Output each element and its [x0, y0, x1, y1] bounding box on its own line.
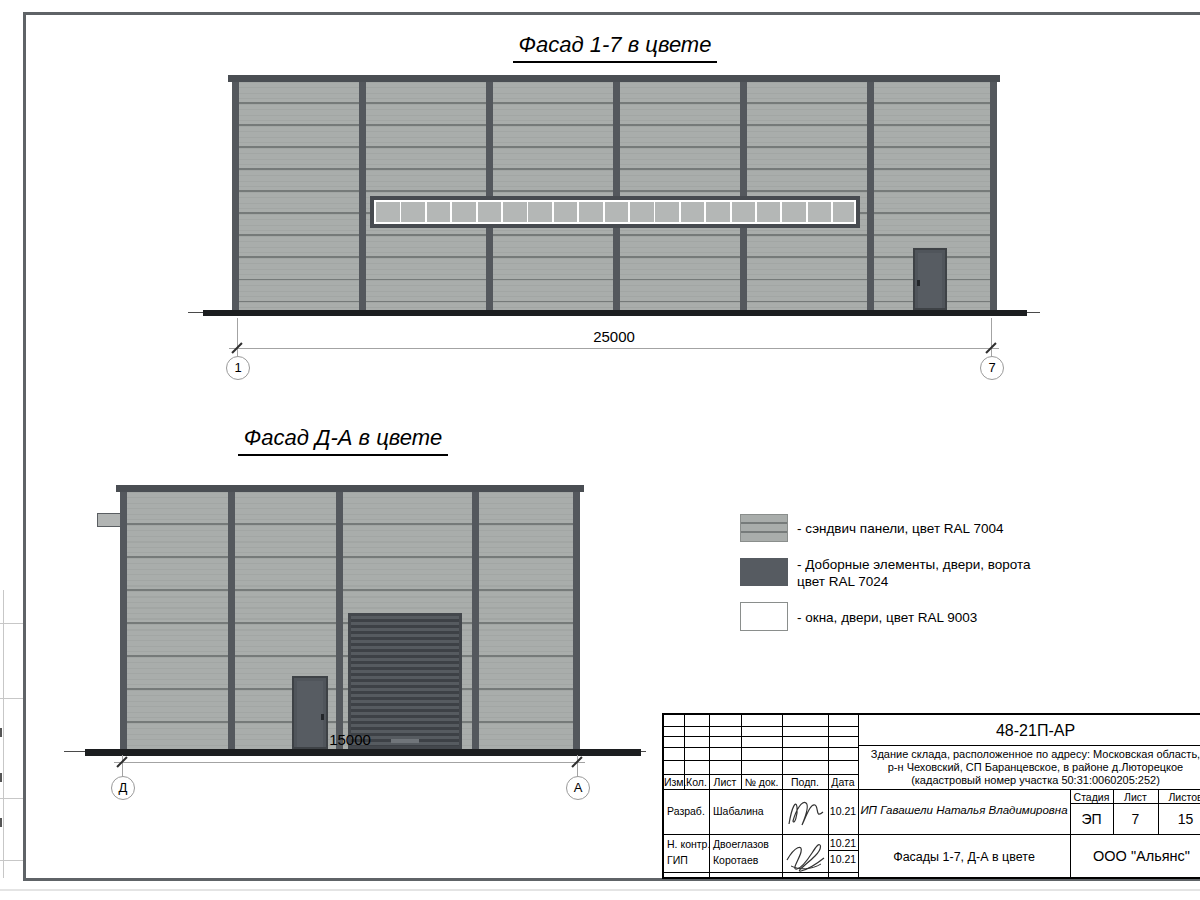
drawing-sheet: Фасад 1-7 в цвете 25000 1 7 Фасад Д-А в …: [0, 0, 1200, 900]
title-block-line: [709, 715, 710, 877]
tb-sheet-label: Лист: [1113, 791, 1158, 803]
legend-label-line2: цвет RAL 7024: [797, 573, 1031, 590]
tb-role-razrab: Разраб.: [667, 805, 705, 817]
title-block-line: [828, 850, 858, 851]
margin-stamp-hline: [0, 860, 23, 861]
dim-extension-line: [991, 318, 992, 358]
title-block-line: [664, 872, 858, 873]
tb-client: ИП Гавашели Наталья Владимировна: [858, 804, 1070, 816]
gutter-outlet: [97, 513, 122, 527]
facade-d-a-parapet-band: [116, 485, 584, 492]
tb-header-podp: Подп.: [782, 776, 828, 788]
title-block-line: [858, 745, 1200, 746]
tb-name-nkontr: Двоеглазов: [713, 838, 769, 850]
tb-project-code: 48-21П-АР: [858, 722, 1200, 740]
facade-column: [472, 492, 479, 749]
facade-1-7-title-text: Фасад 1-7 в цвете: [513, 32, 718, 63]
tb-date-gip: 10.21: [828, 853, 858, 865]
tb-address-line2: р-н Чеховский, СП Баранцевское, в районе…: [858, 761, 1200, 773]
margin-stamp-hline: [0, 698, 23, 699]
facade-column: [336, 492, 343, 749]
tb-address-line1: Здание склада, расположенное по адресу: …: [858, 748, 1200, 760]
frame-left-line: [23, 12, 26, 881]
margin-stamp-hline: [0, 798, 23, 799]
title-block-line: [664, 747, 858, 748]
signature-gip: [783, 836, 827, 874]
dimension-label: 25000: [554, 328, 674, 345]
door-handle: [917, 280, 920, 286]
title-block-line: [664, 774, 858, 775]
axis-marker-1: 1: [226, 356, 250, 380]
tb-header-data: Дата: [828, 776, 858, 788]
tb-date-razrab: 10.21: [828, 805, 858, 817]
roller-gate: [348, 613, 462, 749]
tb-date-nkontr: 10.21: [828, 837, 858, 849]
axis-marker-d: Д: [111, 776, 135, 800]
margin-stamp-text-fragment: [0, 818, 2, 827]
legend-label: - окна, двери, цвет RAL 9003: [797, 609, 977, 626]
door-leaf: [918, 253, 942, 308]
door-handle: [321, 714, 324, 720]
facade-d-a-title-text: Фасад Д-А в цвете: [238, 425, 449, 456]
title-block-line: [664, 834, 1200, 835]
margin-stamp-hline: [0, 623, 23, 624]
tb-sheet-value: 7: [1113, 811, 1158, 827]
signature-razrab: [783, 792, 827, 832]
frame-top-line: [23, 12, 1200, 15]
facade-1-7-plinth-base: [203, 310, 1027, 316]
facade-column: [228, 492, 235, 749]
facade-column: [990, 82, 997, 310]
facade-column: [573, 492, 580, 749]
legend-label-line1: - Доборные элементы, двери, ворота: [797, 556, 1031, 573]
title-block-line: [664, 760, 858, 761]
legend-swatch-doors-gates: [740, 558, 788, 586]
window-panes: [374, 200, 856, 224]
facade-d-a-title: Фасад Д-А в цвете: [193, 425, 493, 456]
paper-edge-line: [0, 889, 1200, 891]
facade-1-7-title: Фасад 1-7 в цвете: [465, 32, 765, 63]
tb-header-kol: Кол.: [684, 776, 709, 788]
facade-column: [359, 82, 366, 310]
legend-label: - сэндвич панели, цвет RAL 7004: [797, 520, 1003, 537]
tb-role-nkontr: Н. контр.: [667, 838, 710, 850]
legend-swatch-sandwich-panels: [740, 514, 788, 542]
tb-name-gip: Коротаев: [713, 854, 758, 866]
dimension-line: [229, 348, 999, 349]
window-band: [370, 196, 860, 228]
margin-stamp-text-fragment: [0, 728, 2, 737]
tb-header-doc: № док.: [741, 776, 782, 788]
facade-d-a-plinth-base: [85, 749, 641, 756]
facade-column: [867, 82, 874, 310]
title-block: Изм. Кол. Лист № док. Подп. Дата 48-21П-…: [662, 713, 1200, 879]
title-block-line: [1070, 803, 1200, 804]
tb-header-izm: Изм.: [664, 776, 684, 788]
margin-stamp-text-fragment: [0, 773, 2, 782]
tb-company: ООО "Альянс": [1070, 848, 1200, 864]
facade-1-7-parapet-band: [228, 75, 1000, 82]
facade-1-7-entrance-door: [913, 248, 947, 310]
facade-column: [120, 492, 127, 749]
dimension-line: [114, 762, 585, 763]
axis-marker-7: 7: [980, 356, 1004, 380]
legend-label: - Доборные элементы, двери, ворота цвет …: [797, 556, 1031, 590]
tb-role-gip: ГИП: [667, 854, 688, 866]
title-block-line: [664, 736, 858, 737]
title-block-line: [664, 726, 858, 727]
tb-stage-label: Стадия: [1070, 791, 1113, 803]
legend-swatch-windows: [740, 602, 788, 631]
tb-name-razrab: Шабалина: [713, 805, 764, 817]
dimension-label: 15000: [290, 731, 410, 748]
tb-address-line3: (кадастровый номер участка 50:31:0060205…: [858, 774, 1200, 786]
tb-sheets-label: Листов: [1158, 791, 1200, 803]
tb-stage-value: ЭП: [1070, 811, 1113, 827]
axis-marker-a: А: [566, 776, 590, 800]
facade-column: [232, 82, 239, 310]
margin-stamp-vline: [3, 590, 4, 878]
tb-header-list: Лист: [709, 776, 741, 788]
tb-doc-title: Фасады 1-7, Д-А в цвете: [858, 850, 1070, 864]
title-block-line: [664, 789, 1200, 790]
dim-extension-line: [237, 318, 238, 358]
tb-sheets-value: 15: [1158, 811, 1200, 827]
